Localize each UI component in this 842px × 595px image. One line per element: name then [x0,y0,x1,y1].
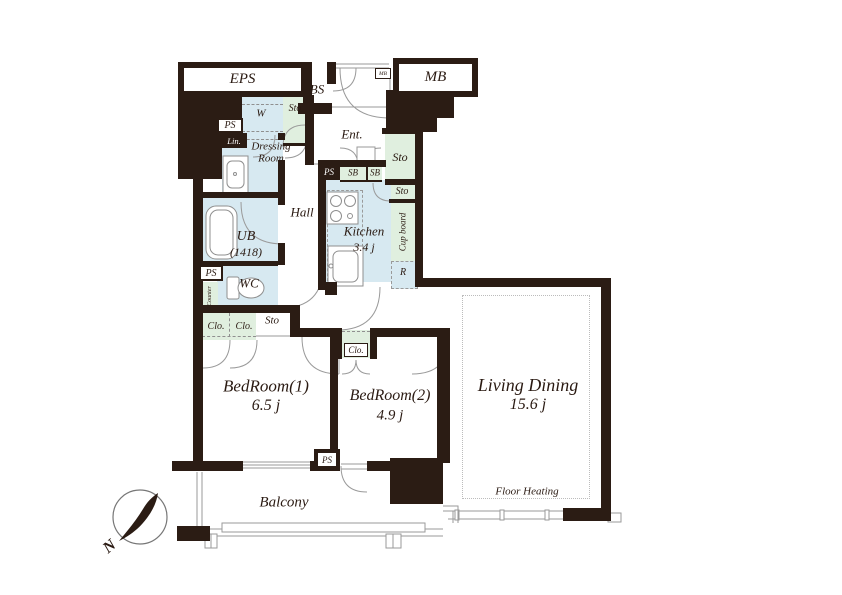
bedroom2-label-line2: 4.9 j [377,409,404,424]
living-dining-label-line2: 15.6 j [510,397,546,413]
wc-label: WC [239,277,259,290]
wall-segment [298,103,332,114]
entrance-label: Ent. [341,128,362,141]
mb-shaft: MB [393,58,478,97]
wall-segment [415,128,423,282]
ps-chip-top: PS [217,118,243,133]
storage-entrance-label: Sto [392,151,407,163]
wall-segment [382,128,415,134]
balcony-label: Balcony [259,496,308,511]
dressing-label-line2: Room [258,154,284,165]
mb-meter-chip: MB [375,68,391,79]
ps-chip-balcony: PS [317,452,337,467]
wall-segment [366,166,368,180]
floor-heating-label: Floor Heating [495,487,558,498]
wall-segment [437,328,450,463]
kitchen-label-line2: 3.4 j [353,241,374,253]
living-dining-label-line1: Living Dining [478,376,579,394]
bs-label: BS [310,83,324,96]
wall-segment [601,278,611,521]
wall-segment [327,62,336,84]
toilet-icon [227,277,239,299]
dressing-label-line1: Dressing [251,142,290,153]
wall-segment [415,278,611,287]
storage-kitchen-label: Sto [396,187,409,197]
wall-segment [305,95,314,165]
wall-segment [563,508,611,521]
mb-label: MB [425,70,447,85]
wall-segment [278,243,285,265]
cupboard-label: Cup board [399,213,408,251]
washer-label: W [256,109,265,120]
wall-segment [430,94,454,118]
wall-segment [193,179,203,471]
closet-2-label: Clo. [236,322,253,332]
counter-label: Counter [207,286,213,306]
wall-segment [385,179,415,185]
wall-segment [325,282,337,295]
wall-segment [330,337,338,463]
shoebox-2-label: SB [370,169,380,178]
closet-bed2-chip: Clo. [344,343,368,357]
hall-label: Hall [290,206,313,219]
balcony-divider-panel [177,526,210,541]
compass-icon [113,490,167,544]
eps-label: EPS [230,72,256,87]
wall-segment [318,164,326,290]
storage-hall-label: Sto [265,316,279,327]
bedroom1-label-line2: 6.5 j [252,398,280,414]
ub-label-line1: UB [237,230,256,244]
ps-chip-kitchen: PS [318,164,340,180]
wall-segment [370,328,437,337]
eps-shaft: EPS [178,62,307,97]
wall-segment [202,192,278,198]
wall-segment [193,305,290,313]
bedroom1-label-line1: BedRoom(1) [223,378,309,395]
linen-chip: Lin. [221,133,247,148]
kitchen-label-line1: Kitchen [344,225,384,238]
wall-segment [278,160,285,205]
ub-label-line2: (1418) [230,246,262,258]
bedroom2-label-line1: BedRoom(2) [350,388,431,404]
wall-segment [295,328,337,337]
floor-plan: EPS MB MB PS Lin. PS PS PS Clo. BS W Sto… [0,0,842,595]
wall-segment [290,305,300,337]
shoebox-1-label: SB [348,169,358,178]
wall-segment [278,133,285,140]
wall-segment [370,328,377,359]
storage-top-label: Sto [289,104,302,114]
closet-1-label: Clo. [208,322,225,332]
wall-segment [389,199,415,203]
wall-segment [340,180,382,182]
wall-segment [175,461,243,471]
wall-segment [390,458,443,504]
wall-segment [178,95,222,179]
ps-chip-wc: PS [199,265,223,281]
refrigerator-label: R [400,268,406,278]
